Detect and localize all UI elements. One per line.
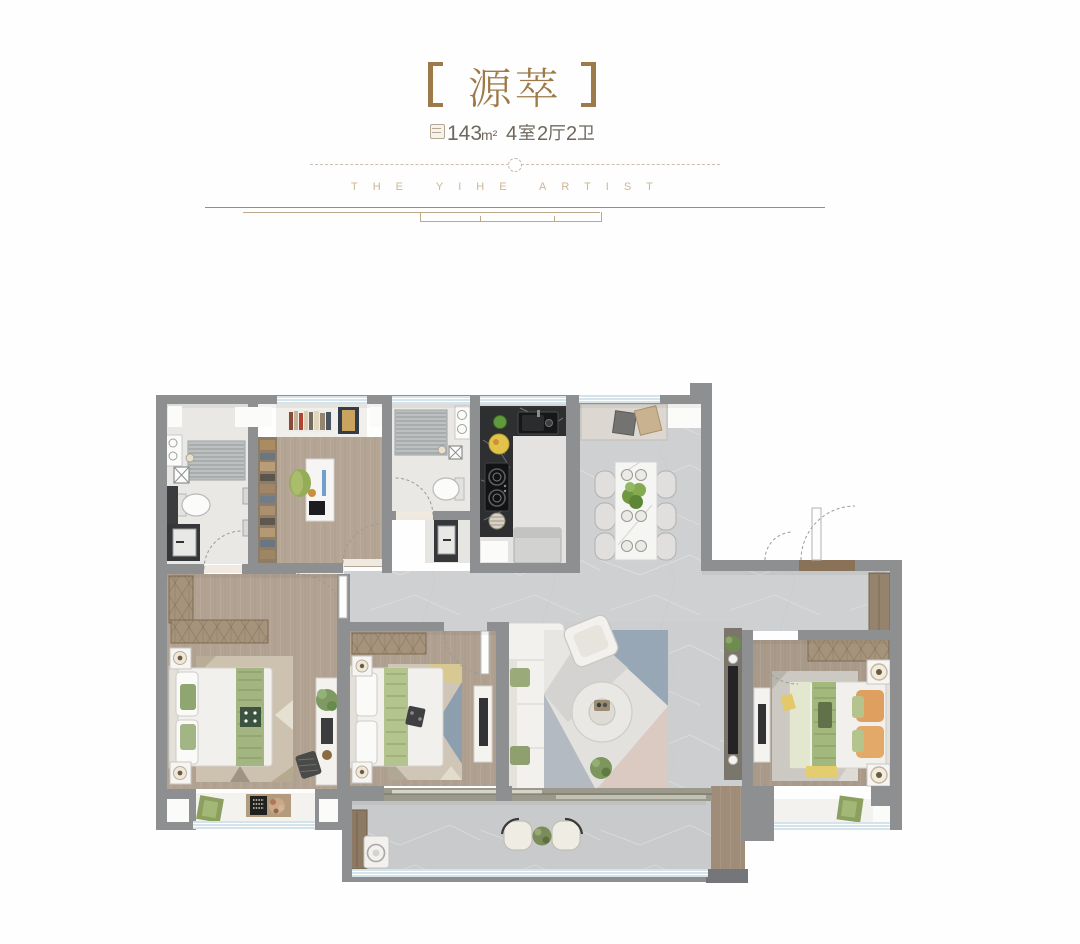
svg-text:2: 2: [566, 123, 577, 145]
svg-text:2: 2: [537, 123, 548, 145]
svg-text:143: 143: [447, 122, 482, 145]
svg-text:4: 4: [506, 123, 517, 145]
svg-text:m²: m²: [481, 127, 498, 143]
